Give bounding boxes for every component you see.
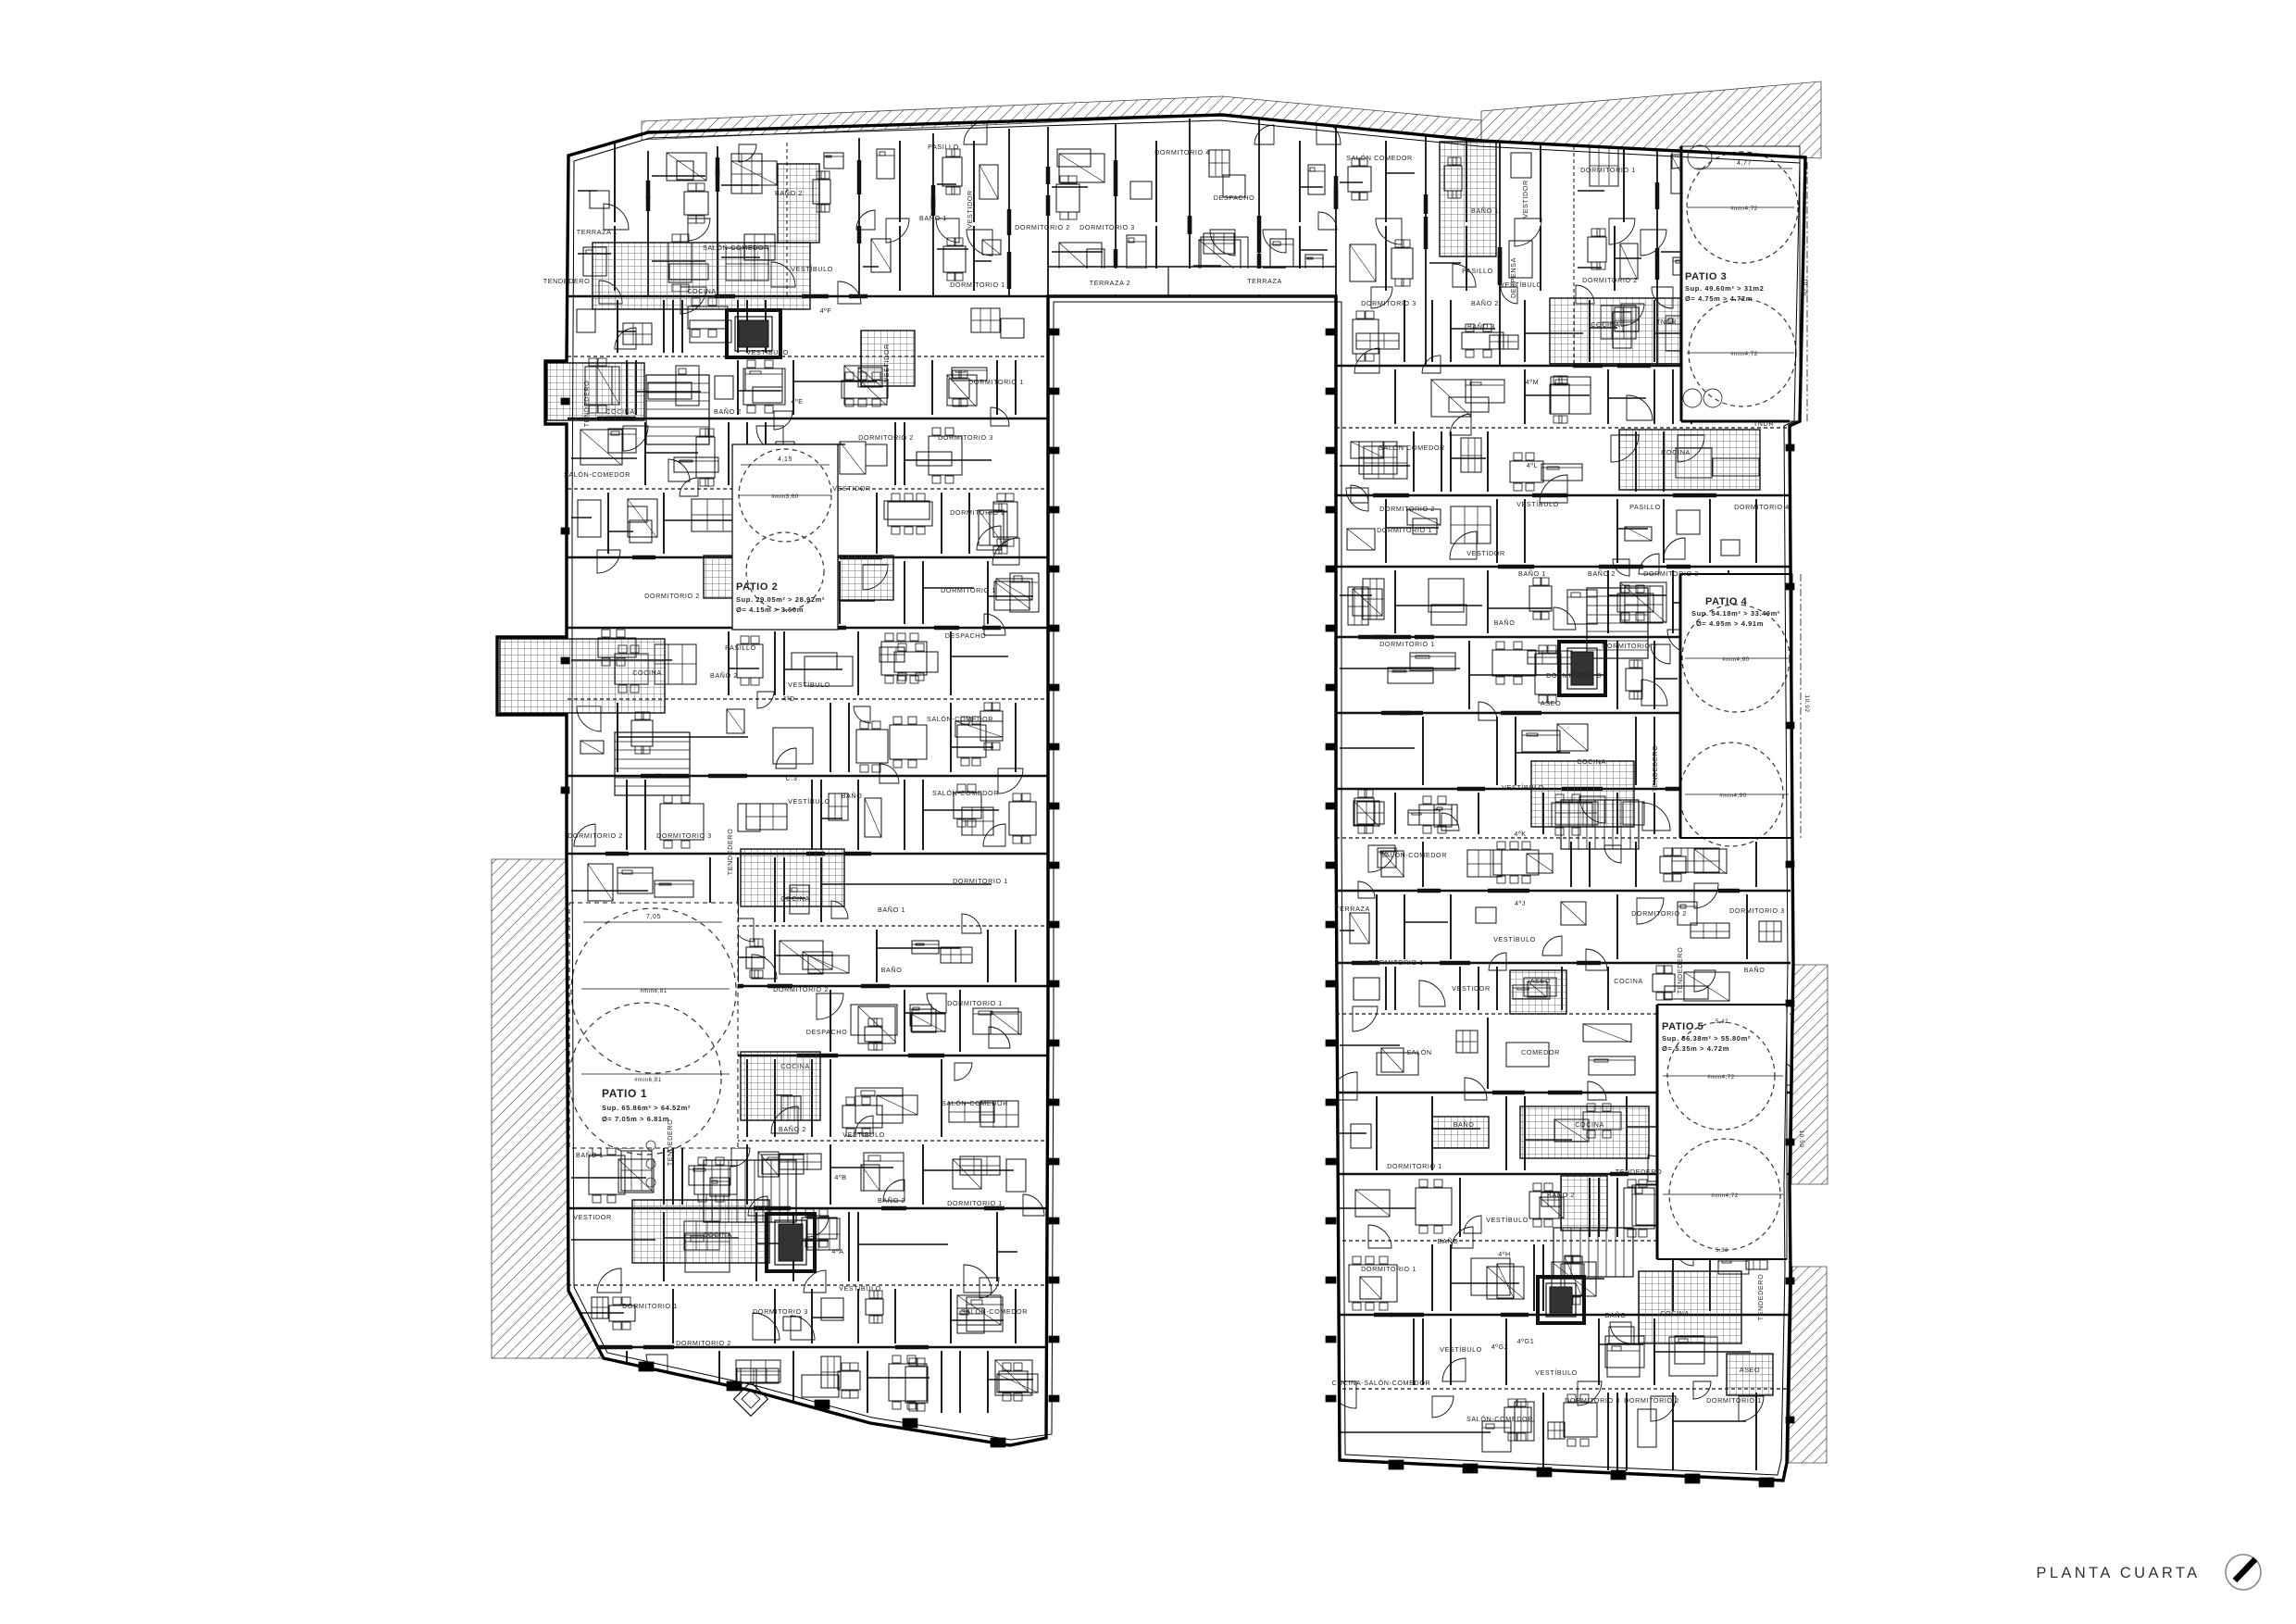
svg-text:Sup. 54.18m² > 33.49m²: Sup. 54.18m² > 33.49m² — [1691, 609, 1780, 618]
svg-text:TENDEDERO: TENDEDERO — [666, 1119, 674, 1167]
svg-text:ASEO: ASEO — [1541, 699, 1561, 707]
svg-text:DORMITORIO 2: DORMITORIO 2 — [568, 831, 623, 840]
svg-text:DORMITORIO 1: DORMITORIO 1 — [941, 586, 996, 594]
svg-text:DORMITORIO 3: DORMITORIO 3 — [1546, 671, 1602, 680]
svg-text:DORMITORIO 4: DORMITORIO 4 — [1734, 503, 1790, 511]
svg-text:TNDR: TNDR — [1656, 318, 1677, 326]
svg-text:DESPACHO: DESPACHO — [945, 631, 987, 640]
svg-text:DORMITORIO 1: DORMITORIO 1 — [953, 877, 1008, 885]
svg-text:COCINA: COCINA — [687, 287, 717, 295]
svg-text:PATIO 1: PATIO 1 — [602, 1087, 647, 1100]
svg-text:COCINA: COCINA — [1661, 448, 1691, 456]
svg-text:SALÓN-COMEDOR: SALÓN-COMEDOR — [703, 244, 769, 252]
svg-text:COCINA: COCINA — [703, 1230, 732, 1239]
svg-text:4ºE: 4ºE — [791, 397, 803, 406]
svg-text:VESTÍBULO: VESTÍBULO — [791, 265, 833, 273]
svg-text:DESPENSA: DESPENSA — [1509, 257, 1517, 298]
svg-text:COCINA: COCINA — [605, 407, 635, 416]
svg-text:4ºD: 4ºD — [782, 694, 795, 703]
svg-text:TERRAZA: TERRAZA — [1247, 277, 1282, 285]
svg-text:BAÑO 1: BAÑO 1 — [576, 1151, 604, 1159]
svg-text:4ºJ: 4ºJ — [1515, 899, 1526, 907]
svg-text:DORMITORIO 3: DORMITORIO 3 — [1079, 223, 1135, 231]
svg-text:BAÑO 2: BAÑO 2 — [775, 189, 803, 197]
svg-text:PATIO 3: PATIO 3 — [1685, 271, 1727, 282]
svg-text:BAÑO: BAÑO — [881, 966, 903, 974]
svg-text:VESTIDOR: VESTIDOR — [966, 190, 974, 229]
svg-text:#min6,81: #min6,81 — [640, 989, 668, 994]
svg-text:DORMITORIO 1: DORMITORIO 1 — [1361, 1265, 1416, 1273]
svg-text:TENDEDERO: TENDEDERO — [1616, 1168, 1663, 1176]
svg-text:VESTIDOR: VESTIDOR — [1466, 549, 1505, 557]
svg-text:PATIO 4: PATIO 4 — [1705, 596, 1748, 607]
svg-text:DORMITORIO 3: DORMITORIO 3 — [753, 1307, 808, 1316]
svg-text:BAÑO: BAÑO — [1454, 1120, 1475, 1129]
svg-text:BAÑO 2: BAÑO 2 — [714, 407, 742, 416]
svg-text:DORMITORIO 4: DORMITORIO 4 — [1154, 148, 1210, 156]
svg-text:DORMITORIO 2: DORMITORIO 2 — [1624, 1396, 1679, 1405]
svg-text:4ºM: 4ºM — [1526, 378, 1539, 386]
svg-text:BAÑO 2: BAÑO 2 — [1471, 299, 1499, 307]
svg-text:BAÑO: BAÑO — [1744, 966, 1766, 974]
svg-text:COCINA: COCINA — [1614, 977, 1643, 985]
svg-text:VESTÍBULO: VESTÍBULO — [1500, 281, 1542, 289]
svg-text:TENDEDERO: TENDEDERO — [1756, 1274, 1765, 1321]
svg-text:COCINA: COCINA — [1577, 757, 1606, 766]
svg-text:DORMITORIO 1: DORMITORIO 1 — [1368, 958, 1424, 967]
svg-text:4ºB: 4ºB — [834, 1173, 846, 1181]
svg-text:C.3: C.3 — [786, 774, 798, 782]
svg-text:SALÓN COMEDOR: SALÓN COMEDOR — [1346, 154, 1413, 162]
svg-text:DORMITORIO 2: DORMITORIO 2 — [1631, 909, 1687, 918]
svg-text:SALÓN COMEDOR: SALÓN COMEDOR — [1379, 443, 1445, 452]
svg-text:DORMITORIO 3: DORMITORIO 3 — [1565, 1396, 1620, 1405]
svg-text:VESTÍBULO: VESTÍBULO — [839, 1284, 881, 1293]
svg-text:DORMITORIO 1: DORMITORIO 1 — [1580, 166, 1636, 174]
svg-text:DORMITORIO 3: DORMITORIO 3 — [1643, 569, 1699, 578]
svg-text:DESPACHO: DESPACHO — [806, 1028, 848, 1036]
svg-text:DORMITORIO 2: DORMITORIO 2 — [773, 985, 829, 993]
svg-text:10,50: 10,50 — [1798, 1130, 1804, 1147]
svg-text:BAÑO 2: BAÑO 2 — [710, 671, 738, 680]
svg-text:DORMITORIO 1: DORMITORIO 1 — [622, 1302, 678, 1310]
svg-text:VESTÍBULO: VESTÍBULO — [788, 797, 830, 806]
svg-text:VESTIDOR: VESTIDOR — [573, 1213, 612, 1221]
svg-text:COCINA: COCINA — [780, 1062, 810, 1070]
svg-text:PASILLO: PASILLO — [928, 143, 959, 151]
svg-text:PATIO 2: PATIO 2 — [736, 581, 778, 593]
svg-text:DORMITORIO 2: DORMITORIO 2 — [1015, 223, 1070, 231]
svg-text:TERRAZA 2: TERRAZA 2 — [1090, 279, 1131, 287]
svg-text:SALÓN-COMEDOR: SALÓN-COMEDOR — [927, 715, 993, 723]
svg-text:DORMITORIO 1: DORMITORIO 1 — [947, 999, 1003, 1007]
svg-text:BAÑO 1: BAÑO 1 — [1471, 206, 1499, 215]
svg-text:TERRAZA 1: TERRAZA 1 — [577, 228, 618, 236]
svg-text:COCINA: COCINA — [780, 894, 810, 903]
svg-text:DORMITORIO 1: DORMITORIO 1 — [1706, 1396, 1762, 1405]
svg-text:SALÓN-COMEDOR: SALÓN-COMEDOR — [932, 789, 999, 797]
svg-text:DORMITORIO 2: DORMITORIO 2 — [1379, 505, 1435, 513]
svg-text:COMEDOR: COMEDOR — [1521, 1048, 1560, 1056]
svg-text:DORMITORIO 1: DORMITORIO 1 — [1379, 640, 1435, 648]
svg-text:5,42: 5,42 — [1716, 1019, 1728, 1025]
svg-text:Sup. 56.38m² > 55.80m²: Sup. 56.38m² > 55.80m² — [1662, 1034, 1751, 1043]
svg-text:VESTÍBULO: VESTÍBULO — [1440, 1345, 1482, 1354]
svg-text:PLANTA CUARTA: PLANTA CUARTA — [2036, 1565, 2200, 1581]
svg-text:DORMITORIO 3: DORMITORIO 3 — [1361, 299, 1416, 307]
svg-text:BAÑO: BAÑO — [1438, 1237, 1459, 1245]
svg-text:5,32: 5,32 — [1716, 1248, 1728, 1254]
svg-text:VESTÍBULO: VESTÍBULO — [746, 348, 789, 356]
svg-text:DORMITORIO 2: DORMITORIO 2 — [644, 592, 700, 600]
svg-text:7,05: 7,05 — [646, 914, 661, 920]
svg-text:COCINA: COCINA — [1575, 1120, 1604, 1129]
svg-text:SALÓN-COMEDOR: SALÓN-COMEDOR — [942, 1099, 1008, 1107]
svg-text:TENDEDERO: TENDEDERO — [1651, 745, 1659, 793]
svg-text:BAÑO 2: BAÑO 2 — [1547, 1191, 1575, 1199]
svg-text:4ºA: 4ºA — [831, 1247, 843, 1255]
svg-text:DORMITORIO 3: DORMITORIO 3 — [1729, 906, 1785, 915]
svg-text:SALÓN-COMEDOR: SALÓN-COMEDOR — [961, 1307, 1028, 1316]
svg-text:VESTÍBULO: VESTÍBULO — [1493, 935, 1536, 943]
svg-text:BAÑO: BAÑO — [842, 792, 863, 800]
svg-text:PATIO 5: PATIO 5 — [1662, 1021, 1703, 1032]
svg-text:BAÑO 1: BAÑO 1 — [1518, 569, 1546, 578]
svg-text:VESTIDOR: VESTIDOR — [832, 484, 871, 493]
svg-text:DORMITORIO 2: DORMITORIO 2 — [858, 433, 914, 442]
svg-text:Sup. 49.60m² > 31m2: Sup. 49.60m² > 31m2 — [1685, 284, 1764, 293]
svg-text:DORMITORIO 2: DORMITORIO 2 — [676, 1339, 731, 1347]
svg-text:BAÑO: BAÑO — [1494, 618, 1516, 627]
svg-text:VESTÍBULO: VESTÍBULO — [1502, 783, 1544, 792]
svg-text:DORMITORIO 3: DORMITORIO 3 — [938, 433, 993, 442]
svg-text:4ºG2: 4ºG2 — [1491, 1343, 1509, 1351]
svg-text:VESTIDOR: VESTIDOR — [1452, 984, 1491, 993]
svg-text:4,77: 4,77 — [1737, 160, 1752, 167]
svg-text:#min6,81: #min6,81 — [634, 1078, 662, 1083]
svg-text:4ºG1: 4ºG1 — [1517, 1337, 1535, 1345]
svg-text:Ø= 5.35m > 4.72m: Ø= 5.35m > 4.72m — [1662, 1044, 1729, 1053]
svg-text:VESTÍBULO: VESTÍBULO — [1516, 500, 1559, 508]
svg-text:10,92: 10,92 — [1803, 694, 1810, 712]
svg-text:Sup. 29.05m² > 28.92m²: Sup. 29.05m² > 28.92m² — [736, 595, 825, 604]
svg-text:VESTÍBULO: VESTÍBULO — [1535, 1368, 1578, 1377]
svg-text:BAÑO 1: BAÑO 1 — [878, 906, 905, 914]
svg-text:SALÓN-COMEDOR: SALÓN-COMEDOR — [564, 470, 630, 479]
svg-text:4ºL: 4ºL — [1527, 461, 1538, 469]
svg-text:VESTÍBULO: VESTÍBULO — [788, 681, 830, 689]
svg-text:DORMITORIO 1: DORMITORIO 1 — [947, 1199, 1003, 1207]
svg-text:Ø= 4.15m > 3.60m: Ø= 4.15m > 3.60m — [736, 606, 804, 614]
svg-text:Ø= 4.95m > 4.91m: Ø= 4.95m > 4.91m — [1696, 619, 1764, 628]
svg-text:ASEO: ASEO — [1530, 977, 1551, 985]
svg-text:VESTIDOR: VESTIDOR — [882, 344, 891, 382]
svg-text:BAÑO 2: BAÑO 2 — [779, 1125, 806, 1133]
svg-text:Ø= 7.05m > 6.81m: Ø= 7.05m > 6.81m — [602, 1115, 669, 1123]
svg-text:4ºF: 4ºF — [820, 306, 832, 315]
svg-text:PASILLO: PASILLO — [1629, 503, 1661, 511]
svg-text:COCINA-SALÓN-COMEDOR: COCINA-SALÓN-COMEDOR — [1332, 1379, 1431, 1387]
svg-text:TERRAZA: TERRAZA — [1335, 905, 1370, 913]
svg-text:BAÑO 3: BAÑO 3 — [1467, 322, 1495, 331]
svg-text:TNDR: TNDR — [1753, 419, 1774, 428]
svg-text:BAÑO 2: BAÑO 2 — [878, 1196, 905, 1205]
svg-text:COCINA: COCINA — [1591, 320, 1620, 329]
svg-text:PASILLO: PASILLO — [725, 643, 756, 652]
svg-text:DORMITORIO 1: DORMITORIO 1 — [968, 378, 1024, 386]
svg-text:TENDEDERO: TENDEDERO — [582, 381, 591, 428]
svg-text:SALÓN-COMEDOR: SALÓN-COMEDOR — [1466, 1415, 1533, 1423]
svg-text:4ºK: 4ºK — [1514, 830, 1526, 838]
svg-text:TENDEDERO: TENDEDERO — [543, 277, 591, 285]
svg-text:PASILLO: PASILLO — [1462, 267, 1493, 275]
svg-text:DORMITORIO 3: DORMITORIO 3 — [656, 831, 712, 840]
svg-text:DORMITORIO 2: DORMITORIO 2 — [1582, 276, 1638, 284]
svg-text:SALÓN: SALÓN — [1406, 1048, 1431, 1056]
svg-text:VESTÍBULO: VESTÍBULO — [842, 1131, 885, 1139]
svg-text:4ºH: 4ºH — [1498, 1250, 1511, 1258]
svg-text:DORMITORIO 1: DORMITORIO 1 — [950, 281, 1005, 289]
svg-text:SALÓN-COMEDOR: SALÓN-COMEDOR — [1380, 851, 1447, 859]
svg-text:10,26: 10,26 — [1802, 278, 1808, 295]
svg-text:TENDEDERO: TENDEDERO — [726, 829, 734, 876]
svg-text:VESTÍBULO: VESTÍBULO — [1486, 1216, 1529, 1224]
svg-text:BAÑO: BAÑO — [1605, 1311, 1627, 1319]
svg-text:DORMITORIO 2: DORMITORIO 2 — [950, 508, 1005, 517]
svg-text:BAÑO 1: BAÑO 1 — [919, 214, 947, 222]
svg-text:DORMITORIO 1: DORMITORIO 1 — [1387, 1162, 1442, 1170]
svg-text:DORMITORIO 2: DORMITORIO 2 — [1602, 642, 1657, 650]
svg-text:VESTIDOR: VESTIDOR — [1521, 180, 1529, 219]
svg-text:4,15: 4,15 — [778, 456, 792, 463]
svg-text:DORMITORIO 1: DORMITORIO 1 — [1377, 526, 1432, 534]
svg-text:ASEO: ASEO — [1740, 1366, 1760, 1374]
svg-text:Sup. 65.86m² > 64.52m²: Sup. 65.86m² > 64.52m² — [602, 1104, 691, 1112]
svg-text:COCINA: COCINA — [1660, 1309, 1690, 1318]
svg-text:COCINA: COCINA — [632, 668, 662, 677]
svg-text:Ø= 4.75m > 4.72m: Ø= 4.75m > 4.72m — [1685, 294, 1753, 303]
svg-text:DESPACHO: DESPACHO — [1214, 194, 1255, 202]
svg-text:BAÑO 2: BAÑO 2 — [1588, 569, 1616, 578]
svg-text:TENDEDERO: TENDEDERO — [1676, 947, 1684, 994]
